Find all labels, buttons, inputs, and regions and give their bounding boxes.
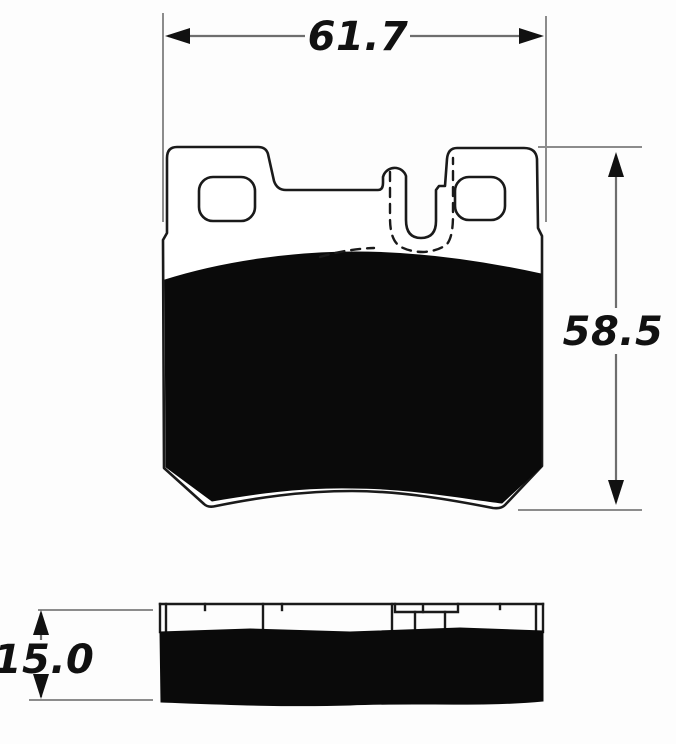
- pad-edge-view: [160, 604, 543, 706]
- height-arrow-top: [608, 152, 624, 177]
- side-friction-material: [160, 628, 543, 706]
- mounting-hole-right: [455, 177, 505, 220]
- thickness-dimension-label: 15.0: [0, 637, 94, 683]
- friction-material: [165, 252, 541, 503]
- brake-pad-drawing: 61.7 58.5: [0, 0, 676, 744]
- height-dimension-label: 58.5: [563, 309, 664, 355]
- mounting-hole-left: [199, 177, 255, 221]
- width-arrow-left: [165, 28, 190, 44]
- thickness-arrow-top: [33, 610, 49, 635]
- thickness-dimension: 15.0: [0, 610, 153, 700]
- width-arrow-right: [519, 28, 544, 44]
- pad-face-view: [163, 147, 542, 508]
- width-dimension-label: 61.7: [308, 14, 409, 60]
- drawing-canvas: 61.7 58.5: [0, 0, 676, 744]
- height-arrow-bottom: [608, 480, 624, 505]
